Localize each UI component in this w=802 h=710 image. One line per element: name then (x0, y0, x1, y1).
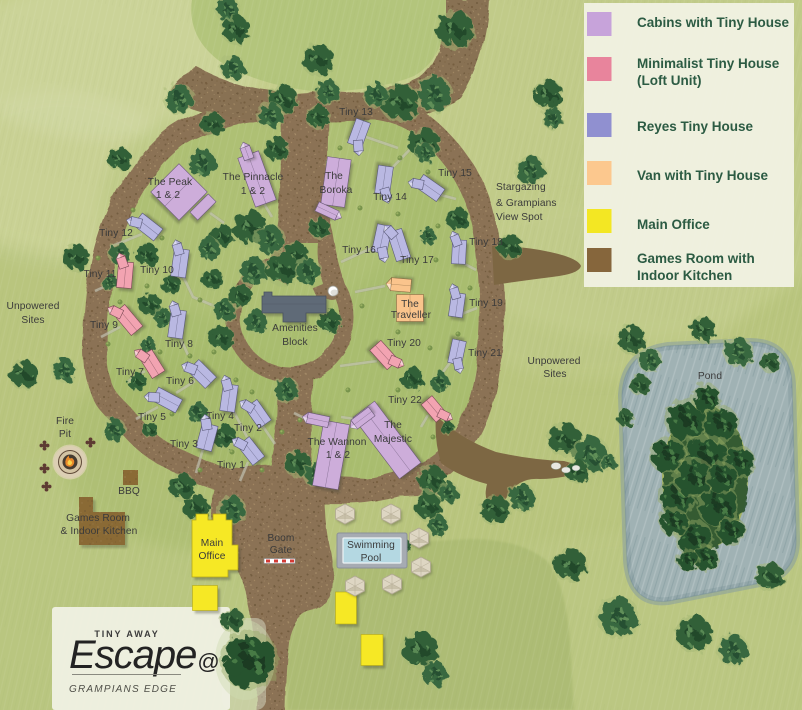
svg-text:The Peak: The Peak (148, 177, 193, 188)
svg-text:The: The (401, 299, 419, 310)
svg-text:Main: Main (201, 538, 223, 549)
svg-text:Games Room with: Games Room with (637, 251, 755, 266)
svg-text:Tiny 5: Tiny 5 (138, 412, 166, 423)
svg-text:Stargazing: Stargazing (496, 182, 546, 193)
svg-text:Sites: Sites (21, 315, 44, 326)
svg-text:View Spot: View Spot (496, 212, 543, 223)
svg-text:Tiny 1: Tiny 1 (217, 460, 245, 471)
svg-text:Gate: Gate (270, 545, 293, 556)
svg-text:Tiny 18: Tiny 18 (469, 237, 503, 248)
svg-text:Tiny 12: Tiny 12 (99, 228, 133, 239)
svg-text:Tiny 11: Tiny 11 (84, 269, 117, 280)
svg-text:The Pinnacle: The Pinnacle (223, 172, 284, 183)
svg-text:Majestic: Majestic (374, 434, 412, 445)
svg-text:GRAMPIANS EDGE: GRAMPIANS EDGE (69, 684, 177, 695)
svg-text:Tiny 4: Tiny 4 (206, 411, 234, 422)
svg-text:Pond: Pond (698, 371, 722, 382)
svg-text:Office: Office (198, 551, 225, 562)
svg-text:Escape: Escape (69, 633, 196, 677)
svg-text:1 & 2: 1 & 2 (241, 186, 266, 197)
svg-text:Tiny 2: Tiny 2 (234, 423, 262, 434)
svg-text:The: The (384, 420, 402, 431)
svg-text:Tiny 7: Tiny 7 (116, 367, 144, 378)
svg-text:Tiny 16: Tiny 16 (342, 245, 376, 256)
svg-text:Games Room: Games Room (66, 513, 130, 524)
svg-text:Boom: Boom (267, 533, 294, 544)
svg-text:1 & 2: 1 & 2 (326, 450, 351, 461)
svg-text:Fire: Fire (56, 416, 74, 427)
svg-text:Minimalist Tiny House: Minimalist Tiny House (637, 56, 780, 71)
svg-text:Tiny 17: Tiny 17 (400, 255, 434, 266)
svg-text:Reyes Tiny House: Reyes Tiny House (637, 119, 754, 134)
svg-text:Tiny 8: Tiny 8 (165, 339, 193, 350)
svg-text:Tiny 21: Tiny 21 (468, 348, 502, 359)
svg-text:Tiny 19: Tiny 19 (469, 298, 503, 309)
svg-text:1 & 2: 1 & 2 (156, 190, 181, 201)
svg-text:Indoor Kitchen: Indoor Kitchen (637, 268, 732, 283)
svg-text:Pit: Pit (59, 429, 71, 440)
svg-text:Unpowered: Unpowered (6, 301, 59, 312)
svg-text:The Wannon: The Wannon (308, 437, 367, 448)
svg-text:The: The (325, 171, 343, 182)
svg-text:Pool: Pool (361, 553, 382, 564)
svg-text:BBQ: BBQ (118, 486, 140, 497)
svg-text:Tiny 3: Tiny 3 (170, 439, 198, 450)
svg-text:Tiny 20: Tiny 20 (387, 338, 421, 349)
svg-text:Sites: Sites (543, 369, 566, 380)
svg-text:Van with Tiny House: Van with Tiny House (637, 168, 769, 183)
svg-text:Boroka: Boroka (320, 185, 353, 196)
svg-text:Cabins with Tiny House: Cabins with Tiny House (637, 15, 790, 30)
svg-text:Tiny 14: Tiny 14 (373, 192, 407, 203)
svg-text:Tiny 6: Tiny 6 (166, 376, 194, 387)
svg-text:Swimming: Swimming (347, 540, 395, 551)
svg-text:@: @ (197, 649, 219, 674)
svg-text:Tiny 22: Tiny 22 (388, 395, 422, 406)
svg-text:Tiny 9: Tiny 9 (90, 320, 118, 331)
svg-text:& Grampians: & Grampians (496, 198, 557, 209)
svg-text:Amenities: Amenities (272, 323, 318, 334)
svg-text:Unpowered: Unpowered (527, 356, 580, 367)
svg-text:& Indoor Kitchen: & Indoor Kitchen (61, 526, 138, 537)
svg-text:Traveller: Traveller (391, 310, 432, 321)
svg-text:Block: Block (282, 337, 308, 348)
svg-text:Tiny 15: Tiny 15 (438, 168, 472, 179)
svg-text:Tiny 10: Tiny 10 (140, 265, 174, 276)
svg-text:Main Office: Main Office (637, 217, 710, 232)
svg-text:(Loft Unit): (Loft Unit) (637, 73, 701, 88)
svg-text:Tiny 13: Tiny 13 (339, 107, 373, 118)
